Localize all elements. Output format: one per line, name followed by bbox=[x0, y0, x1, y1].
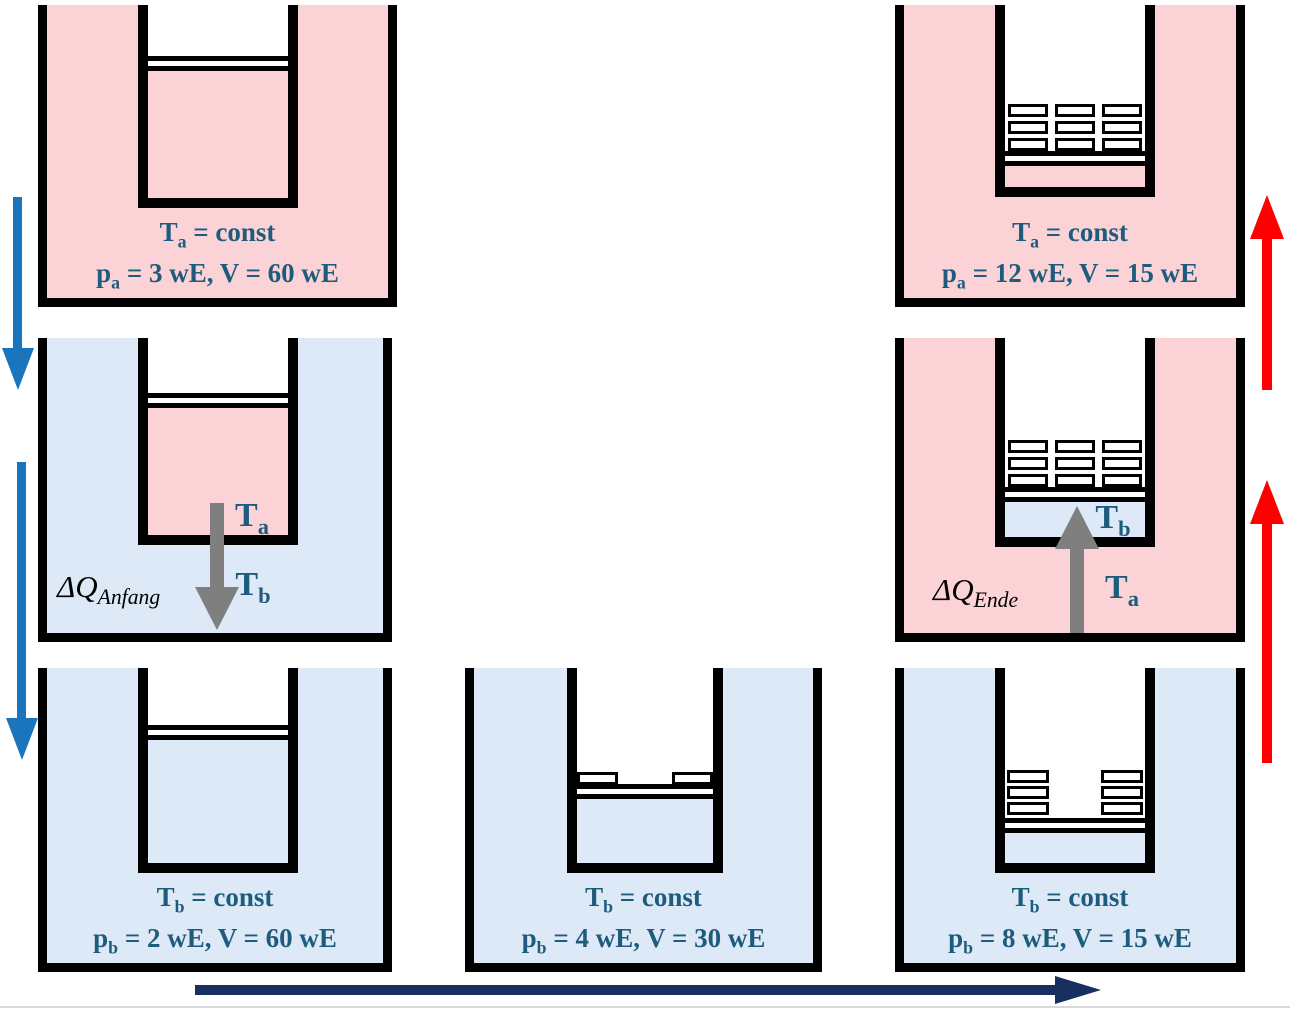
subscript: b bbox=[175, 896, 185, 916]
weight-block bbox=[1055, 474, 1095, 487]
weight-block bbox=[1102, 104, 1142, 117]
pressure-volume-label: pa = 3 wE, V = 60 wE bbox=[47, 257, 388, 289]
symbol: T bbox=[1012, 217, 1030, 247]
symbol: T bbox=[235, 497, 258, 534]
delta-q-ende-label: ΔQEnde bbox=[933, 573, 1018, 607]
symbol: ΔQ bbox=[57, 569, 98, 604]
pressure-volume-label: pb = 2 wE, V = 60 wE bbox=[47, 922, 383, 954]
hot-temperature-label: Ta bbox=[235, 499, 269, 533]
delta-q-anfang-label: ΔQAnfang bbox=[57, 570, 160, 604]
process-direction-arrow-icon bbox=[195, 985, 1055, 995]
process-direction-arrowhead-icon bbox=[1055, 976, 1101, 1004]
weight-block bbox=[1007, 770, 1049, 783]
weight-block bbox=[1008, 138, 1048, 151]
piston-cylinder bbox=[138, 668, 298, 873]
value: = const bbox=[1039, 217, 1128, 247]
temperature-label: Ta = const bbox=[47, 216, 388, 248]
cold-temperature-label: Tb bbox=[235, 568, 270, 602]
symbol: T bbox=[160, 217, 178, 247]
piston-cylinder bbox=[995, 668, 1155, 873]
weight-block bbox=[1007, 786, 1049, 799]
weight-block bbox=[1008, 474, 1048, 487]
symbol: p bbox=[93, 923, 108, 953]
weight-row bbox=[1008, 121, 1142, 134]
gas-volume-cold bbox=[1005, 832, 1145, 863]
temperature-label: Tb = const bbox=[904, 881, 1236, 913]
weight-block bbox=[1101, 770, 1143, 783]
weight-row bbox=[1008, 440, 1142, 453]
weight-block bbox=[1101, 802, 1143, 815]
subscript: a bbox=[258, 514, 269, 539]
heat-flow-up-arrow-icon bbox=[1070, 549, 1084, 633]
subscript: b bbox=[963, 937, 973, 957]
heat-transfer-start-cell: Ta Tb ΔQAnfang bbox=[38, 338, 392, 642]
symbol: p bbox=[522, 923, 537, 953]
slide-bottom-edge bbox=[0, 1006, 1290, 1008]
subscript: a bbox=[1030, 231, 1039, 251]
subscript: b bbox=[537, 937, 547, 957]
hot-bath-state-initial: Ta = const pa = 3 wE, V = 60 wE bbox=[38, 5, 397, 307]
symbol: p bbox=[948, 923, 963, 953]
value: = 3 wE, V = 60 wE bbox=[120, 258, 339, 288]
thermodynamic-cycle-diagram: Ta = const pa = 3 wE, V = 60 wE Ta = con… bbox=[0, 0, 1290, 1010]
weight-stack bbox=[1007, 770, 1049, 815]
heat-flow-down-arrow-icon bbox=[210, 503, 224, 587]
sequence-up-arrow-icon bbox=[1262, 524, 1272, 763]
pressure-volume-label: pb = 8 wE, V = 15 wE bbox=[904, 922, 1236, 954]
symbol: ΔQ bbox=[933, 572, 974, 607]
weight-block bbox=[1008, 457, 1048, 470]
cold-bath-state-mid: Tb = const pb = 4 wE, V = 30 wE bbox=[465, 668, 822, 972]
weight-stack bbox=[1008, 440, 1142, 487]
heat-flow-up-arrowhead-icon bbox=[1055, 506, 1099, 549]
sequence-down-arrowhead-icon bbox=[2, 348, 34, 390]
temperature-label: Tb = const bbox=[47, 881, 383, 913]
subscript: a bbox=[1128, 586, 1139, 611]
value: = 2 wE, V = 60 wE bbox=[118, 923, 337, 953]
value: = const bbox=[613, 882, 702, 912]
piston bbox=[148, 725, 288, 740]
piston-cylinder bbox=[138, 5, 298, 208]
weight-block bbox=[1102, 121, 1142, 134]
value: = const bbox=[185, 882, 274, 912]
weight-block bbox=[1008, 104, 1048, 117]
subscript: Anfang bbox=[98, 585, 161, 609]
weight-block bbox=[1102, 440, 1142, 453]
subscript: a bbox=[111, 272, 120, 292]
symbol: T bbox=[1095, 499, 1118, 536]
gas-volume-cold bbox=[577, 799, 713, 863]
heat-flow-down-arrowhead-icon bbox=[195, 587, 239, 630]
hot-bath-state-compressed: Ta = const pa = 12 wE, V = 15 wE bbox=[895, 5, 1245, 307]
cold-temperature-label: Tb bbox=[1095, 501, 1130, 535]
value: = 8 wE, V = 15 wE bbox=[973, 923, 1192, 953]
subscript: b bbox=[258, 583, 270, 608]
heat-transfer-end-cell: Tb Ta ΔQEnde bbox=[895, 338, 1245, 642]
temperature-label: Ta = const bbox=[904, 216, 1236, 248]
weight-block bbox=[1055, 104, 1095, 117]
symbol: T bbox=[235, 566, 258, 603]
sequence-down-arrow-icon bbox=[13, 197, 22, 348]
piston bbox=[1005, 487, 1145, 502]
weight-row bbox=[1008, 138, 1142, 151]
weight-block bbox=[1055, 121, 1095, 134]
weight-stack bbox=[1008, 104, 1142, 151]
weight-block bbox=[1055, 440, 1095, 453]
symbol: T bbox=[1105, 569, 1128, 606]
pressure-volume-label: pa = 12 wE, V = 15 wE bbox=[904, 257, 1236, 289]
value: = 4 wE, V = 30 wE bbox=[547, 923, 766, 953]
subscript: b bbox=[1030, 896, 1040, 916]
weight-row bbox=[1008, 457, 1142, 470]
weight-row bbox=[1008, 474, 1142, 487]
piston-cylinder bbox=[567, 668, 723, 873]
sequence-up-arrow-icon bbox=[1262, 239, 1272, 390]
symbol: T bbox=[157, 882, 175, 912]
piston bbox=[1005, 151, 1145, 166]
symbol: p bbox=[96, 258, 111, 288]
value: = const bbox=[187, 217, 276, 247]
weight-block bbox=[1101, 786, 1143, 799]
piston bbox=[577, 784, 713, 799]
gas-volume-hot bbox=[1005, 166, 1145, 187]
subscript: a bbox=[957, 272, 966, 292]
subscript: a bbox=[178, 231, 187, 251]
weight-block bbox=[1007, 802, 1049, 815]
weight-block bbox=[1102, 457, 1142, 470]
weight-stack bbox=[1101, 770, 1143, 815]
subscript: b bbox=[603, 896, 613, 916]
value: = const bbox=[1040, 882, 1129, 912]
sequence-down-arrowhead-icon bbox=[6, 718, 38, 760]
weight-block bbox=[1102, 474, 1142, 487]
gas-volume-hot bbox=[148, 70, 288, 198]
symbol: p bbox=[942, 258, 957, 288]
weight-block bbox=[1055, 138, 1095, 151]
weight-block bbox=[1102, 138, 1142, 151]
value: = 12 wE, V = 15 wE bbox=[966, 258, 1198, 288]
gas-volume-cold bbox=[148, 739, 288, 863]
piston-cylinder bbox=[995, 5, 1155, 197]
piston bbox=[1005, 818, 1145, 833]
cold-bath-state-expanded: Tb = const pb = 2 wE, V = 60 wE bbox=[38, 668, 392, 972]
piston bbox=[148, 56, 288, 71]
weight-block bbox=[1055, 457, 1095, 470]
cold-bath-state-compressed: Tb = const pb = 8 wE, V = 15 wE bbox=[895, 668, 1245, 972]
sequence-down-arrow-icon bbox=[17, 462, 26, 718]
symbol: T bbox=[585, 882, 603, 912]
hot-temperature-label: Ta bbox=[1105, 571, 1139, 605]
weight-row bbox=[1008, 104, 1142, 117]
piston bbox=[148, 393, 288, 408]
subscript: Ende bbox=[974, 588, 1019, 612]
temperature-label: Tb = const bbox=[474, 881, 813, 913]
subscript: b bbox=[108, 937, 118, 957]
pressure-volume-label: pb = 4 wE, V = 30 wE bbox=[474, 922, 813, 954]
sequence-up-arrowhead-icon bbox=[1250, 195, 1284, 239]
weight-block bbox=[1008, 121, 1048, 134]
weight-block bbox=[1008, 440, 1048, 453]
subscript: b bbox=[1118, 516, 1130, 541]
sequence-up-arrowhead-icon bbox=[1250, 480, 1284, 524]
symbol: T bbox=[1012, 882, 1030, 912]
